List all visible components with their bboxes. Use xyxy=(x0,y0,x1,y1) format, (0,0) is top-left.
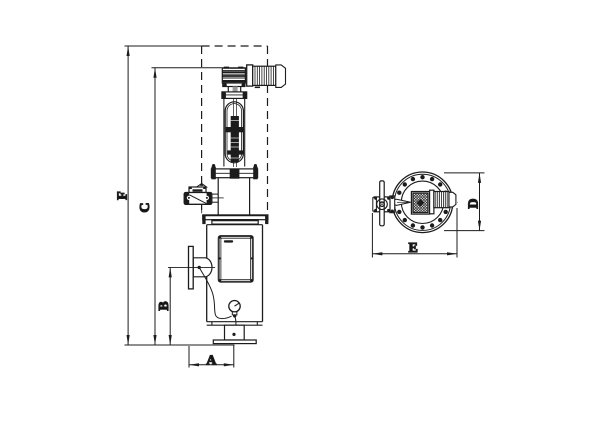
svg-text:B: B xyxy=(157,301,172,310)
svg-text:A: A xyxy=(206,353,217,368)
svg-text:E: E xyxy=(409,241,418,256)
svg-text:D: D xyxy=(466,198,481,208)
svg-text:F: F xyxy=(116,191,131,200)
svg-text:C: C xyxy=(138,202,153,212)
